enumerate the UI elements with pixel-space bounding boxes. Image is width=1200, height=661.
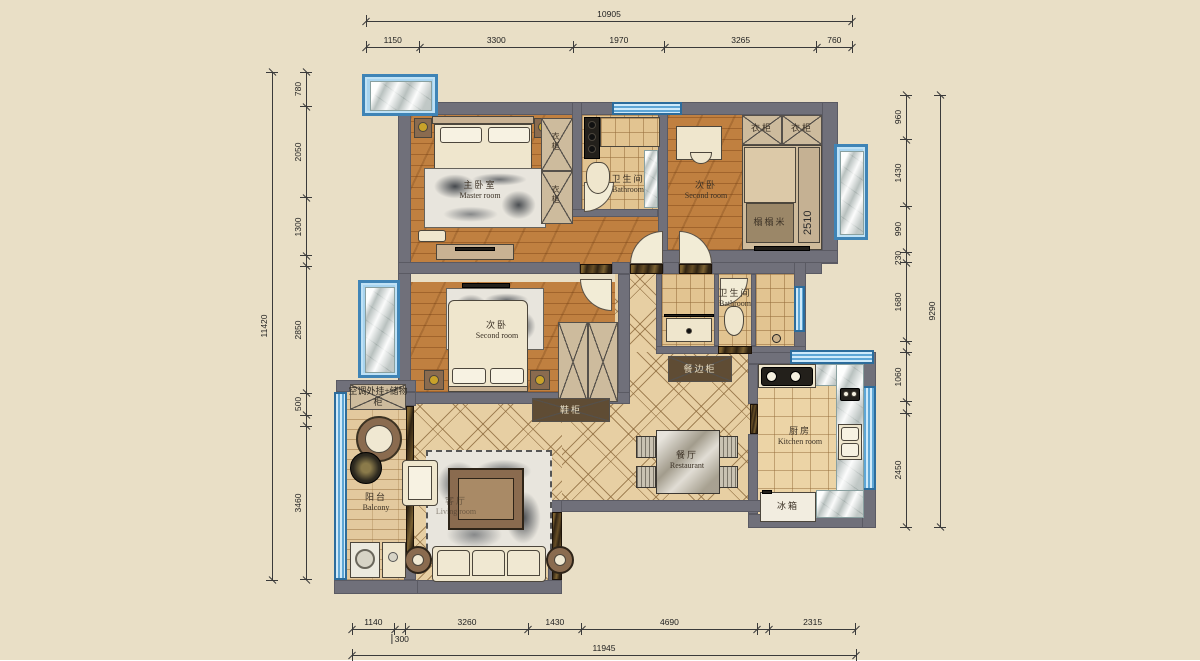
kitchen-counter-bottom [816,490,864,518]
bay-window-top-left-sill [370,81,432,111]
wall-living-bottom [398,580,562,594]
master-lamp-left [418,122,428,132]
wall-master-bath-divider [572,102,582,217]
living-side-table-left-top [412,554,424,566]
master-bench [418,230,446,242]
kitchen-fridge-handle [762,490,772,494]
balcony-side-cabinet-basin [388,552,398,562]
second-top-wardrobe-left [742,115,782,145]
threshold-second-mid-door [580,264,612,274]
dining-chair-bl [636,466,656,488]
kitchen-hob-small-burner-1 [843,391,849,397]
tatami-pillow-block [746,203,794,243]
living-side-table-right-top [554,554,566,566]
second-mid-wardrobe-a [558,322,588,402]
second-top-wardrobe-right [782,115,822,145]
dining-chair-tl [636,436,656,458]
second-top-shelf [754,246,810,251]
bath-top-bowl-3 [588,145,596,153]
dining-chair-br [718,466,738,488]
living-armchair-cushion [408,466,432,500]
window-balcony-left [334,392,347,580]
living-sofa-cushion-3 [507,550,540,576]
kitchen-sink-basin-top [841,427,859,441]
bath-mid-faucet [686,328,692,334]
utility-floor-drain [772,334,781,343]
living-shoe-cabinet [532,398,610,422]
bath-mid-mirror [664,314,714,317]
master-bed-pillow-left [440,127,482,143]
master-wardrobe-label-1: 衣柜 [550,132,561,152]
balcony-washer-drum [355,549,375,569]
dimension-chain-bottom: 1140300326014304690231511945 [352,614,856,656]
bath-mid-toilet [724,306,744,336]
bath-top-shower-panel [644,150,658,208]
second-mid-pillow-right [490,368,524,384]
threshold-second-top-door [679,264,712,274]
master-wardrobe-label-2: 衣柜 [550,185,561,205]
living-coffee-table-inner [458,478,514,520]
master-tv [455,247,495,251]
dining-sideboard [668,356,732,382]
bath-top-counter [600,117,660,147]
master-bed-pillow-right [488,127,530,143]
window-utility [794,286,805,332]
living-sofa-cushion-1 [437,550,470,576]
threshold-bathroom-mid [718,346,752,354]
window-kitchen-top [790,350,874,364]
wall-bath-mid-divider [714,274,719,346]
kitchen-hob-small-burner-2 [851,391,857,397]
bath-top-bowl-1 [588,121,596,129]
balcony-ac-cabinet [350,384,406,410]
wall-corridor-c [663,262,679,274]
wall-corridor-a [398,262,580,274]
second-mid-lamp-left [429,375,439,385]
master-rug [424,168,546,228]
wall-second-mid-right [618,274,630,404]
balcony-plant [350,452,382,484]
wall-hall-bottom [556,500,762,512]
threshold-passage-door [630,264,663,274]
floorplan-canvas: 衣柜 衣柜 主卧室 Master room 卫生间 Bathroom 衣柜 衣柜… [0,0,1200,660]
bath-top-bowl-2 [588,133,596,141]
dining-chair-tr [718,436,738,458]
dimension-chain-top: 109051150330019703265760 [366,6,852,48]
dimension-chain-left: 114207802050130028505003460 [256,72,306,580]
second-mid-wardrobe-b [588,322,618,402]
second-mid-pillow-left [452,368,486,384]
second-mid-headboard [448,386,528,392]
tatami-dim-2510: 2510 [802,185,814,235]
bath-top-toilet [586,162,610,194]
tatami-mat [744,147,796,203]
wall-toilet-utility-divider [751,274,756,346]
kitchen-burner-left [766,371,777,382]
wall-bath-mid-left [656,274,662,352]
balcony-round-chair-seat [365,425,393,453]
window-bathroom-top [612,102,682,115]
kitchen-burner-right [790,371,801,382]
bay-window-left-sill [365,287,395,373]
wall-balcony-bottom [334,580,418,594]
kitchen-fridge [760,492,816,522]
second-mid-lamp-right [535,375,545,385]
living-sofa-cushion-2 [472,550,505,576]
wall-corridor-b [612,262,630,274]
dimension-chain-right: 96014309902301680106024509290 [890,95,940,527]
wall-kitchen-left-a [748,364,758,404]
dining-table [656,430,720,494]
bay-window-right-sill [840,151,864,235]
threshold-kitchen [750,404,758,434]
kitchen-sink-basin-bottom [841,443,859,457]
master-bed-headboard [432,116,534,124]
